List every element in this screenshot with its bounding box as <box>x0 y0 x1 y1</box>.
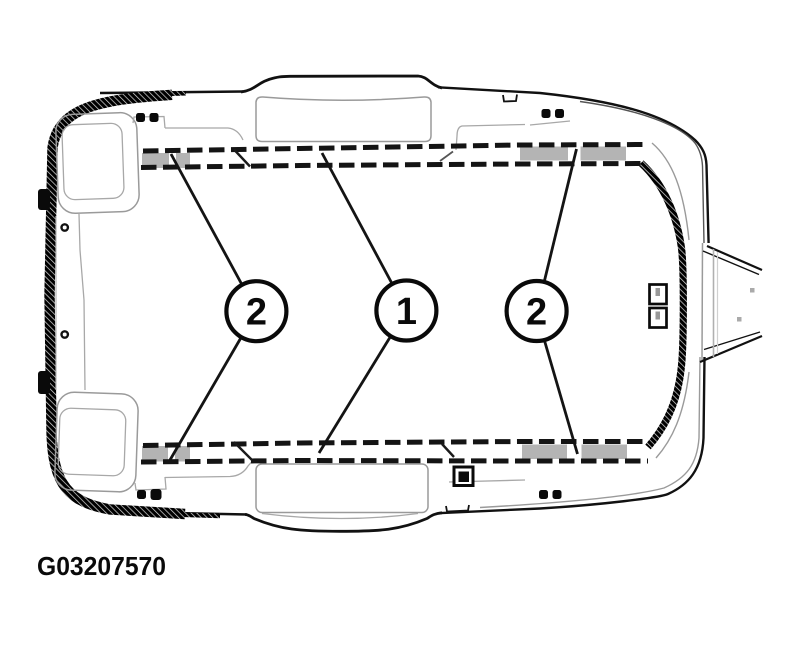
svg-text:G03207570: G03207570 <box>37 551 166 581</box>
svg-text:2: 2 <box>526 292 547 334</box>
svg-text:2: 2 <box>246 292 267 334</box>
svg-text:1: 1 <box>396 291 417 333</box>
